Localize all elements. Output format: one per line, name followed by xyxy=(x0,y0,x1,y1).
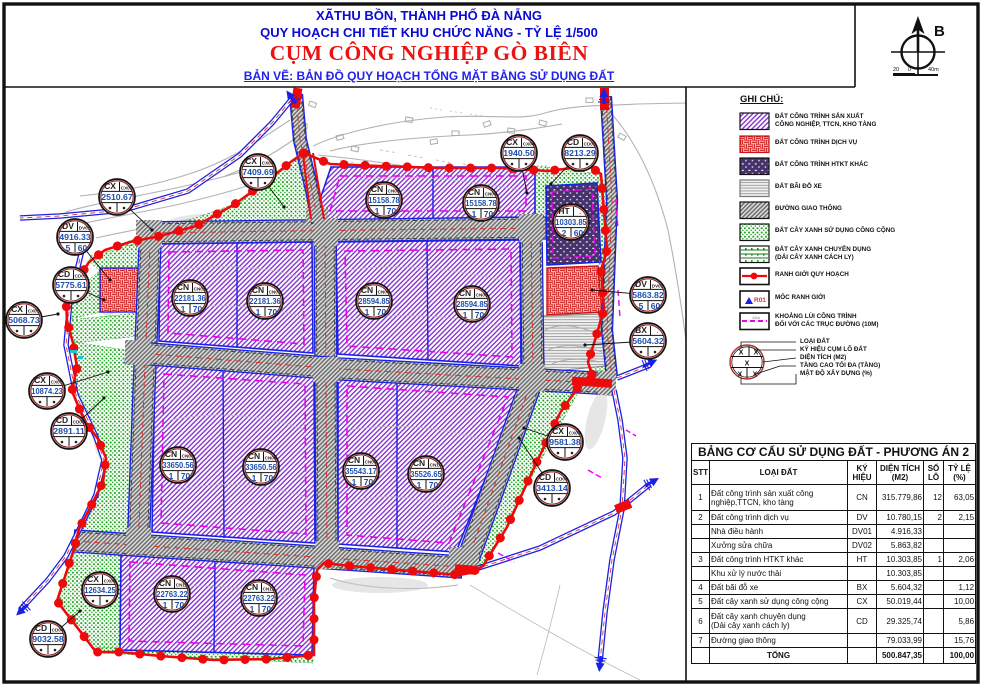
svg-text:5863.82: 5863.82 xyxy=(632,290,664,300)
svg-text:CN11: CN11 xyxy=(176,582,188,587)
svg-text:1: 1 xyxy=(463,310,468,320)
svg-text:CN: CN xyxy=(361,285,373,295)
svg-text:5604.32: 5604.32 xyxy=(632,336,664,346)
svg-text:CD: CD xyxy=(58,269,70,279)
svg-text:2510.67: 2510.67 xyxy=(101,192,133,202)
svg-text:CX: CX xyxy=(506,137,518,147)
svg-text:1: 1 xyxy=(365,307,370,317)
svg-text:1: 1 xyxy=(252,473,257,483)
svg-text:70: 70 xyxy=(268,307,278,317)
svg-text:0: 0 xyxy=(908,67,911,73)
svg-text:3413.14: 3413.14 xyxy=(536,483,568,493)
svg-text:5: 5 xyxy=(639,301,644,311)
svg-text:X: X xyxy=(753,372,758,379)
svg-text:CX: CX xyxy=(87,574,99,584)
svg-text:CX01: CX01 xyxy=(28,308,40,313)
svg-text:CD: CD xyxy=(539,472,551,482)
svg-text:70: 70 xyxy=(262,604,272,614)
svg-text:DV01: DV01 xyxy=(79,225,91,230)
svg-text:CX: CX xyxy=(104,181,116,191)
svg-text:DV: DV xyxy=(635,279,647,289)
svg-text:5: 5 xyxy=(66,243,71,253)
svg-text:7409.69: 7409.69 xyxy=(242,167,274,177)
svg-text:22763.22: 22763.22 xyxy=(243,593,275,603)
svg-text:CX: CX xyxy=(552,426,564,436)
svg-text:BX: BX xyxy=(635,325,647,335)
svg-text:CD05: CD05 xyxy=(73,419,85,424)
svg-text:40m: 40m xyxy=(928,67,939,73)
svg-text:CX04: CX04 xyxy=(523,141,535,146)
svg-text:X: X xyxy=(738,372,743,379)
svg-text:15158.78: 15158.78 xyxy=(465,198,497,208)
svg-text:CN01: CN01 xyxy=(194,286,206,291)
svg-text:60: 60 xyxy=(651,301,661,311)
svg-text:DV02: DV02 xyxy=(652,283,664,288)
svg-text:CN09: CN09 xyxy=(365,459,377,464)
svg-text:5068.73: 5068.73 xyxy=(8,315,40,325)
svg-text:70: 70 xyxy=(429,480,439,490)
svg-text:60: 60 xyxy=(78,243,88,253)
svg-text:8213.29: 8213.29 xyxy=(564,148,596,158)
svg-text:2: 2 xyxy=(562,228,567,238)
svg-text:CN04: CN04 xyxy=(485,191,497,196)
svg-text:CX06: CX06 xyxy=(104,578,116,583)
svg-text:R01: R01 xyxy=(754,297,766,304)
svg-text:1: 1 xyxy=(352,477,357,487)
svg-text:CD: CD xyxy=(56,415,68,425)
svg-text:35526.65: 35526.65 xyxy=(410,469,442,479)
svg-text:28594.85: 28594.85 xyxy=(358,296,390,306)
svg-text:22763.22: 22763.22 xyxy=(156,589,188,599)
svg-text:DV: DV xyxy=(62,221,74,231)
svg-text:CD03: CD03 xyxy=(556,476,568,481)
svg-text:70: 70 xyxy=(175,600,185,610)
svg-text:CN: CN xyxy=(246,582,258,592)
svg-text:5775.61: 5775.61 xyxy=(55,280,87,290)
svg-text:60: 60 xyxy=(574,228,584,238)
svg-text:12634.25: 12634.25 xyxy=(84,585,116,595)
svg-text:9032.58: 9032.58 xyxy=(32,634,64,644)
svg-text:1940.50: 1940.50 xyxy=(503,148,535,158)
svg-text:28594.85: 28594.85 xyxy=(456,299,488,309)
svg-text:CX: CX xyxy=(34,375,46,385)
svg-text:20: 20 xyxy=(893,67,899,73)
svg-text:70: 70 xyxy=(484,209,494,219)
svg-text:CN: CN xyxy=(459,288,471,298)
svg-text:70: 70 xyxy=(264,473,274,483)
svg-text:9581.38: 9581.38 xyxy=(549,437,581,447)
svg-text:10303.85: 10303.85 xyxy=(555,217,587,227)
svg-text:1: 1 xyxy=(256,307,261,317)
svg-text:CN: CN xyxy=(468,187,480,197)
svg-text:CN08: CN08 xyxy=(265,455,277,460)
svg-text:CN10: CN10 xyxy=(430,462,442,467)
svg-text:CD: CD xyxy=(567,137,579,147)
svg-text:CN06: CN06 xyxy=(378,289,390,294)
svg-text:33650.56: 33650.56 xyxy=(245,462,277,472)
svg-text:15158.78: 15158.78 xyxy=(368,195,400,205)
svg-text:CX05: CX05 xyxy=(569,430,581,435)
svg-text:22181.36: 22181.36 xyxy=(249,296,281,306)
svg-text:CD01: CD01 xyxy=(75,273,87,278)
svg-text:CD02: CD02 xyxy=(584,141,596,146)
svg-text:70: 70 xyxy=(387,206,397,216)
svg-text:HT: HT xyxy=(558,206,570,216)
svg-text:CN02: CN02 xyxy=(269,289,281,294)
svg-text:X: X xyxy=(754,350,759,357)
svg-text:X: X xyxy=(745,361,750,368)
svg-text:CX: CX xyxy=(11,304,23,314)
svg-text:70: 70 xyxy=(181,471,191,481)
svg-text:CN: CN xyxy=(413,458,425,468)
svg-text:CN: CN xyxy=(348,455,360,465)
svg-text:X: X xyxy=(739,350,744,357)
svg-text:33650.56: 33650.56 xyxy=(162,460,194,470)
svg-text:22181.36: 22181.36 xyxy=(174,293,206,303)
svg-text:35543.17: 35543.17 xyxy=(345,466,377,476)
svg-text:CN03: CN03 xyxy=(388,188,400,193)
svg-text:CN05: CN05 xyxy=(476,292,488,297)
svg-text:1: 1 xyxy=(163,600,168,610)
svg-text:1: 1 xyxy=(250,604,255,614)
svg-text:1: 1 xyxy=(181,304,186,314)
svg-text:CN12: CN12 xyxy=(263,586,275,591)
svg-text:10874.23: 10874.23 xyxy=(31,386,63,396)
svg-text:CN: CN xyxy=(371,184,383,194)
svg-text:1: 1 xyxy=(375,206,380,216)
svg-text:10m: 10m xyxy=(752,315,760,320)
svg-text:CX07: CX07 xyxy=(51,379,63,384)
svg-text:2891.11: 2891.11 xyxy=(53,426,85,436)
svg-text:1: 1 xyxy=(169,471,174,481)
svg-text:70: 70 xyxy=(377,307,387,317)
svg-text:70: 70 xyxy=(193,304,203,314)
svg-text:1: 1 xyxy=(472,209,477,219)
svg-text:CD04: CD04 xyxy=(52,627,64,632)
svg-text:CX: CX xyxy=(245,156,257,166)
svg-text:4916.33: 4916.33 xyxy=(59,232,91,242)
svg-text:B: B xyxy=(934,23,945,40)
svg-text:CX03: CX03 xyxy=(262,160,274,165)
svg-text:CX02: CX02 xyxy=(121,185,133,190)
svg-text:CN: CN xyxy=(159,578,171,588)
svg-text:CN: CN xyxy=(248,451,260,461)
svg-text:CN07: CN07 xyxy=(182,453,194,458)
svg-text:CD: CD xyxy=(35,623,47,633)
svg-text:70: 70 xyxy=(364,477,374,487)
svg-text:CN: CN xyxy=(252,285,264,295)
svg-text:CN: CN xyxy=(177,282,189,292)
svg-text:1: 1 xyxy=(417,480,422,490)
svg-text:CN: CN xyxy=(165,449,177,459)
svg-text:70: 70 xyxy=(475,310,485,320)
